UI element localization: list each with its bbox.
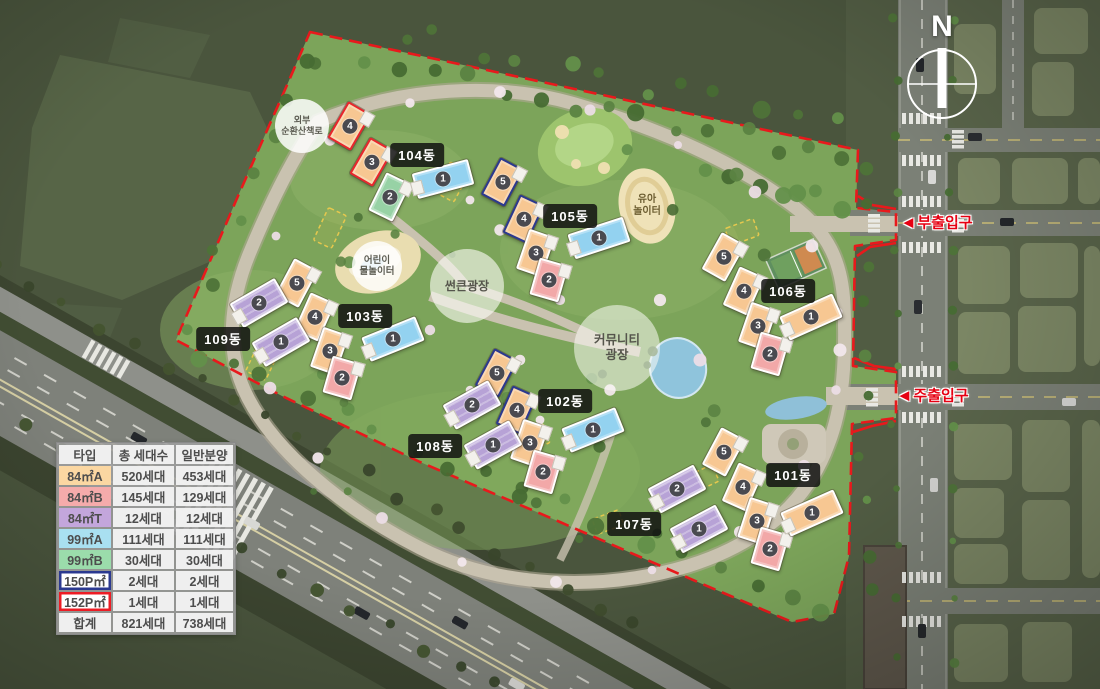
compass-north-letter: N <box>901 10 983 44</box>
legend-row-99㎡A: 99㎡A111세대111세대 <box>59 529 233 548</box>
main-entrance-label: ◀주출입구 <box>899 385 968 406</box>
legend-row-84㎡B: 84㎡B145세대129세대 <box>59 487 233 506</box>
building-label-104: 104동 <box>390 143 444 167</box>
unit-type-legend-table: 타입총 세대수일반분양84㎡A520세대453세대84㎡B145세대129세대8… <box>57 443 235 634</box>
legend-type-cell: 150P㎡ <box>59 571 111 590</box>
legend-header-cell: 타입 <box>59 445 111 464</box>
building-label-108: 108동 <box>408 434 462 458</box>
building-label-109: 109동 <box>196 327 250 351</box>
legend-type-cell: 84㎡T <box>59 508 111 527</box>
legend-general-cell: 2세대 <box>176 571 233 590</box>
entrance-name: 부출입구 <box>917 212 972 233</box>
building-label-102: 102동 <box>538 389 592 413</box>
legend-type-cell: 99㎡B <box>59 550 111 569</box>
legend-total-cell: 111세대 <box>113 529 174 548</box>
area-label-kids-water-play: 어린이물놀이터 <box>352 241 402 291</box>
area-label-sunken-plaza: 썬큰광장 <box>430 249 504 323</box>
building-label-103: 103동 <box>338 304 392 328</box>
building-label-101: 101동 <box>766 463 820 487</box>
legend-total-cell: 12세대 <box>113 508 174 527</box>
entrance-name: 주출입구 <box>913 385 968 406</box>
legend-type-cell: 84㎡A <box>59 466 111 485</box>
legend-header-cell: 일반분양 <box>176 445 233 464</box>
legend-row-84㎡T: 84㎡T12세대12세대 <box>59 508 233 527</box>
legend-type-cell: 합계 <box>59 613 111 632</box>
entrance-arrow-icon: ◀ <box>899 387 909 403</box>
legend-row-84㎡A: 84㎡A520세대453세대 <box>59 466 233 485</box>
legend-total-cell: 1세대 <box>113 592 174 611</box>
legend-total-cell: 2세대 <box>113 571 174 590</box>
area-label-toddler-play: 유아놀이터 <box>624 183 670 229</box>
legend-header-cell: 총 세대수 <box>113 445 174 464</box>
sub-entrance-label: ◀부출입구 <box>903 212 972 233</box>
legend-total-cell: 145세대 <box>113 487 174 506</box>
area-label-community-plaza: 커뮤니티광장 <box>574 305 660 391</box>
legend-general-cell: 30세대 <box>176 550 233 569</box>
legend-general-cell: 1세대 <box>176 592 233 611</box>
building-label-107: 107동 <box>607 512 661 536</box>
legend-general-cell: 12세대 <box>176 508 233 527</box>
legend-header-row: 타입총 세대수일반분양 <box>59 445 233 464</box>
legend-general-cell: 111세대 <box>176 529 233 548</box>
legend-row-합계: 합계821세대738세대 <box>59 613 233 632</box>
legend-row-99㎡B: 99㎡B30세대30세대 <box>59 550 233 569</box>
legend-type-cell: 152P㎡ <box>59 592 111 611</box>
area-label-outer-trail: 외부순환산책로 <box>275 99 329 153</box>
legend-general-cell: 129세대 <box>176 487 233 506</box>
legend-general-cell: 738세대 <box>176 613 233 632</box>
legend-total-cell: 520세대 <box>113 466 174 485</box>
building-label-105: 105동 <box>543 204 597 228</box>
legend-row-150P㎡: 150P㎡2세대2세대 <box>59 571 233 590</box>
legend-total-cell: 821세대 <box>113 613 174 632</box>
compass-icon: N <box>901 10 983 122</box>
building-label-106: 106동 <box>761 279 815 303</box>
apartment-site-plan: 54321543215432143215432154321212121 101동… <box>0 0 1100 689</box>
legend-row-152P㎡: 152P㎡1세대1세대 <box>59 592 233 611</box>
legend-general-cell: 453세대 <box>176 466 233 485</box>
legend-type-cell: 99㎡A <box>59 529 111 548</box>
legend-type-cell: 84㎡B <box>59 487 111 506</box>
entrance-arrow-icon: ◀ <box>903 214 913 230</box>
legend-total-cell: 30세대 <box>113 550 174 569</box>
